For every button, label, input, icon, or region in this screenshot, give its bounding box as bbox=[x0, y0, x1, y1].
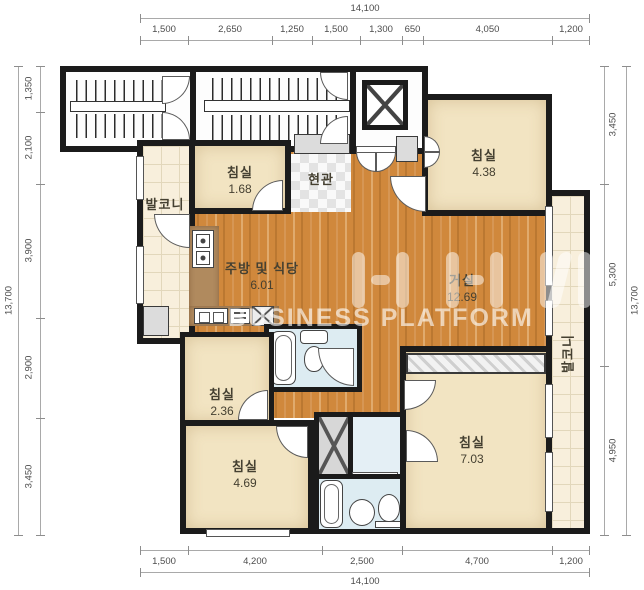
dim-right-seg-2: 4,950 bbox=[608, 416, 619, 486]
dim-left-seg-1: 2,100 bbox=[24, 113, 35, 183]
dim-top-seg-1: 2,650 bbox=[188, 24, 272, 35]
dim-bottom-seg-3: 4,700 bbox=[402, 556, 552, 567]
dim-bottom-seg-4: 1,200 bbox=[552, 556, 590, 567]
tick bbox=[140, 568, 141, 577]
stove-icon bbox=[192, 230, 214, 268]
entrance-floor bbox=[291, 154, 351, 212]
dimension-line bbox=[40, 66, 41, 536]
tick bbox=[36, 535, 45, 536]
tick bbox=[14, 535, 23, 536]
tick bbox=[360, 36, 361, 45]
tick bbox=[36, 66, 45, 67]
toilet-tank bbox=[375, 521, 403, 528]
dimension-line bbox=[626, 66, 627, 536]
dim-top-seg-4: 1,300 bbox=[360, 24, 402, 35]
dimension-line bbox=[604, 66, 605, 536]
dim-right-seg-0: 3,450 bbox=[608, 90, 619, 160]
room-bedroom-top-right bbox=[422, 94, 552, 216]
tick bbox=[36, 418, 45, 419]
window bbox=[206, 529, 290, 537]
stair-treads bbox=[76, 114, 162, 138]
burner-icon bbox=[196, 234, 210, 248]
foyer-closet bbox=[396, 136, 418, 162]
tick bbox=[188, 36, 189, 45]
dim-left-seg-4: 3,450 bbox=[24, 442, 35, 512]
dim-right-total: 13,700 bbox=[630, 266, 641, 336]
tick bbox=[140, 546, 141, 555]
dim-bottom-total: 14,100 bbox=[320, 576, 410, 587]
tick bbox=[36, 112, 45, 113]
sink-unit bbox=[194, 308, 228, 324]
dim-top-seg-0: 1,500 bbox=[140, 24, 188, 35]
tick bbox=[600, 66, 609, 67]
bathtub bbox=[320, 480, 343, 528]
tick bbox=[402, 546, 403, 555]
window bbox=[545, 384, 553, 438]
dressing-room bbox=[348, 412, 406, 480]
tick bbox=[589, 14, 590, 23]
dim-bottom-seg-2: 2,500 bbox=[322, 556, 402, 567]
elevator-shaft bbox=[362, 80, 408, 130]
dim-top-seg-5: 650 bbox=[402, 24, 423, 35]
balcony-storage bbox=[143, 306, 169, 336]
dim-left-total: 13,700 bbox=[4, 266, 15, 336]
window bbox=[545, 206, 553, 286]
burner-icon bbox=[196, 251, 210, 265]
dim-bottom-seg-1: 4,200 bbox=[188, 556, 322, 567]
dimension-line bbox=[140, 550, 590, 551]
tick bbox=[589, 568, 590, 577]
tick bbox=[312, 36, 313, 45]
dim-bottom-seg-0: 1,500 bbox=[140, 556, 188, 567]
tick bbox=[600, 366, 609, 367]
dim-top-seg-2: 1,250 bbox=[272, 24, 312, 35]
stair-landing bbox=[70, 101, 166, 112]
tick bbox=[36, 318, 45, 319]
window bbox=[545, 452, 553, 512]
dim-left-seg-2: 3,900 bbox=[24, 216, 35, 286]
window bbox=[545, 300, 553, 336]
dim-top-seg-6: 4,050 bbox=[423, 24, 552, 35]
tick bbox=[589, 36, 590, 45]
window bbox=[136, 156, 144, 200]
tick bbox=[14, 66, 23, 67]
tick bbox=[272, 36, 273, 45]
dim-top-seg-7: 1,200 bbox=[552, 24, 590, 35]
tick bbox=[188, 546, 189, 555]
tick bbox=[622, 66, 631, 67]
tick bbox=[600, 184, 609, 185]
dim-top-total: 14,100 bbox=[320, 3, 410, 14]
tick bbox=[36, 184, 45, 185]
dim-right-seg-1: 5,300 bbox=[608, 240, 619, 310]
tick bbox=[589, 546, 590, 555]
stair-landing bbox=[204, 100, 350, 112]
dim-top-seg-3: 1,500 bbox=[312, 24, 360, 35]
window bbox=[136, 246, 144, 304]
tick bbox=[140, 14, 141, 23]
dishwasher-unit bbox=[230, 308, 250, 324]
tick bbox=[140, 36, 141, 45]
dimension-line bbox=[140, 40, 590, 41]
dimension-line bbox=[18, 66, 19, 536]
bathtub bbox=[271, 331, 296, 385]
toilet bbox=[378, 494, 400, 522]
washbasin bbox=[349, 499, 375, 526]
floor-plan-canvas: 침실 1.68 현관 침실 4.38 발코니 주방 및 식당 6.01 거실 1… bbox=[0, 0, 644, 590]
duct-x-kitchen bbox=[252, 306, 274, 326]
tick bbox=[402, 36, 403, 45]
built-in-closet bbox=[406, 353, 546, 374]
tick bbox=[552, 546, 553, 555]
tick bbox=[622, 535, 631, 536]
tick bbox=[423, 36, 424, 45]
tick bbox=[600, 535, 609, 536]
tick bbox=[322, 546, 323, 555]
washbasin bbox=[300, 330, 328, 344]
dimension-line bbox=[140, 18, 590, 19]
dim-left-seg-3: 2,900 bbox=[24, 333, 35, 403]
dimension-line bbox=[140, 572, 590, 573]
tick bbox=[552, 36, 553, 45]
